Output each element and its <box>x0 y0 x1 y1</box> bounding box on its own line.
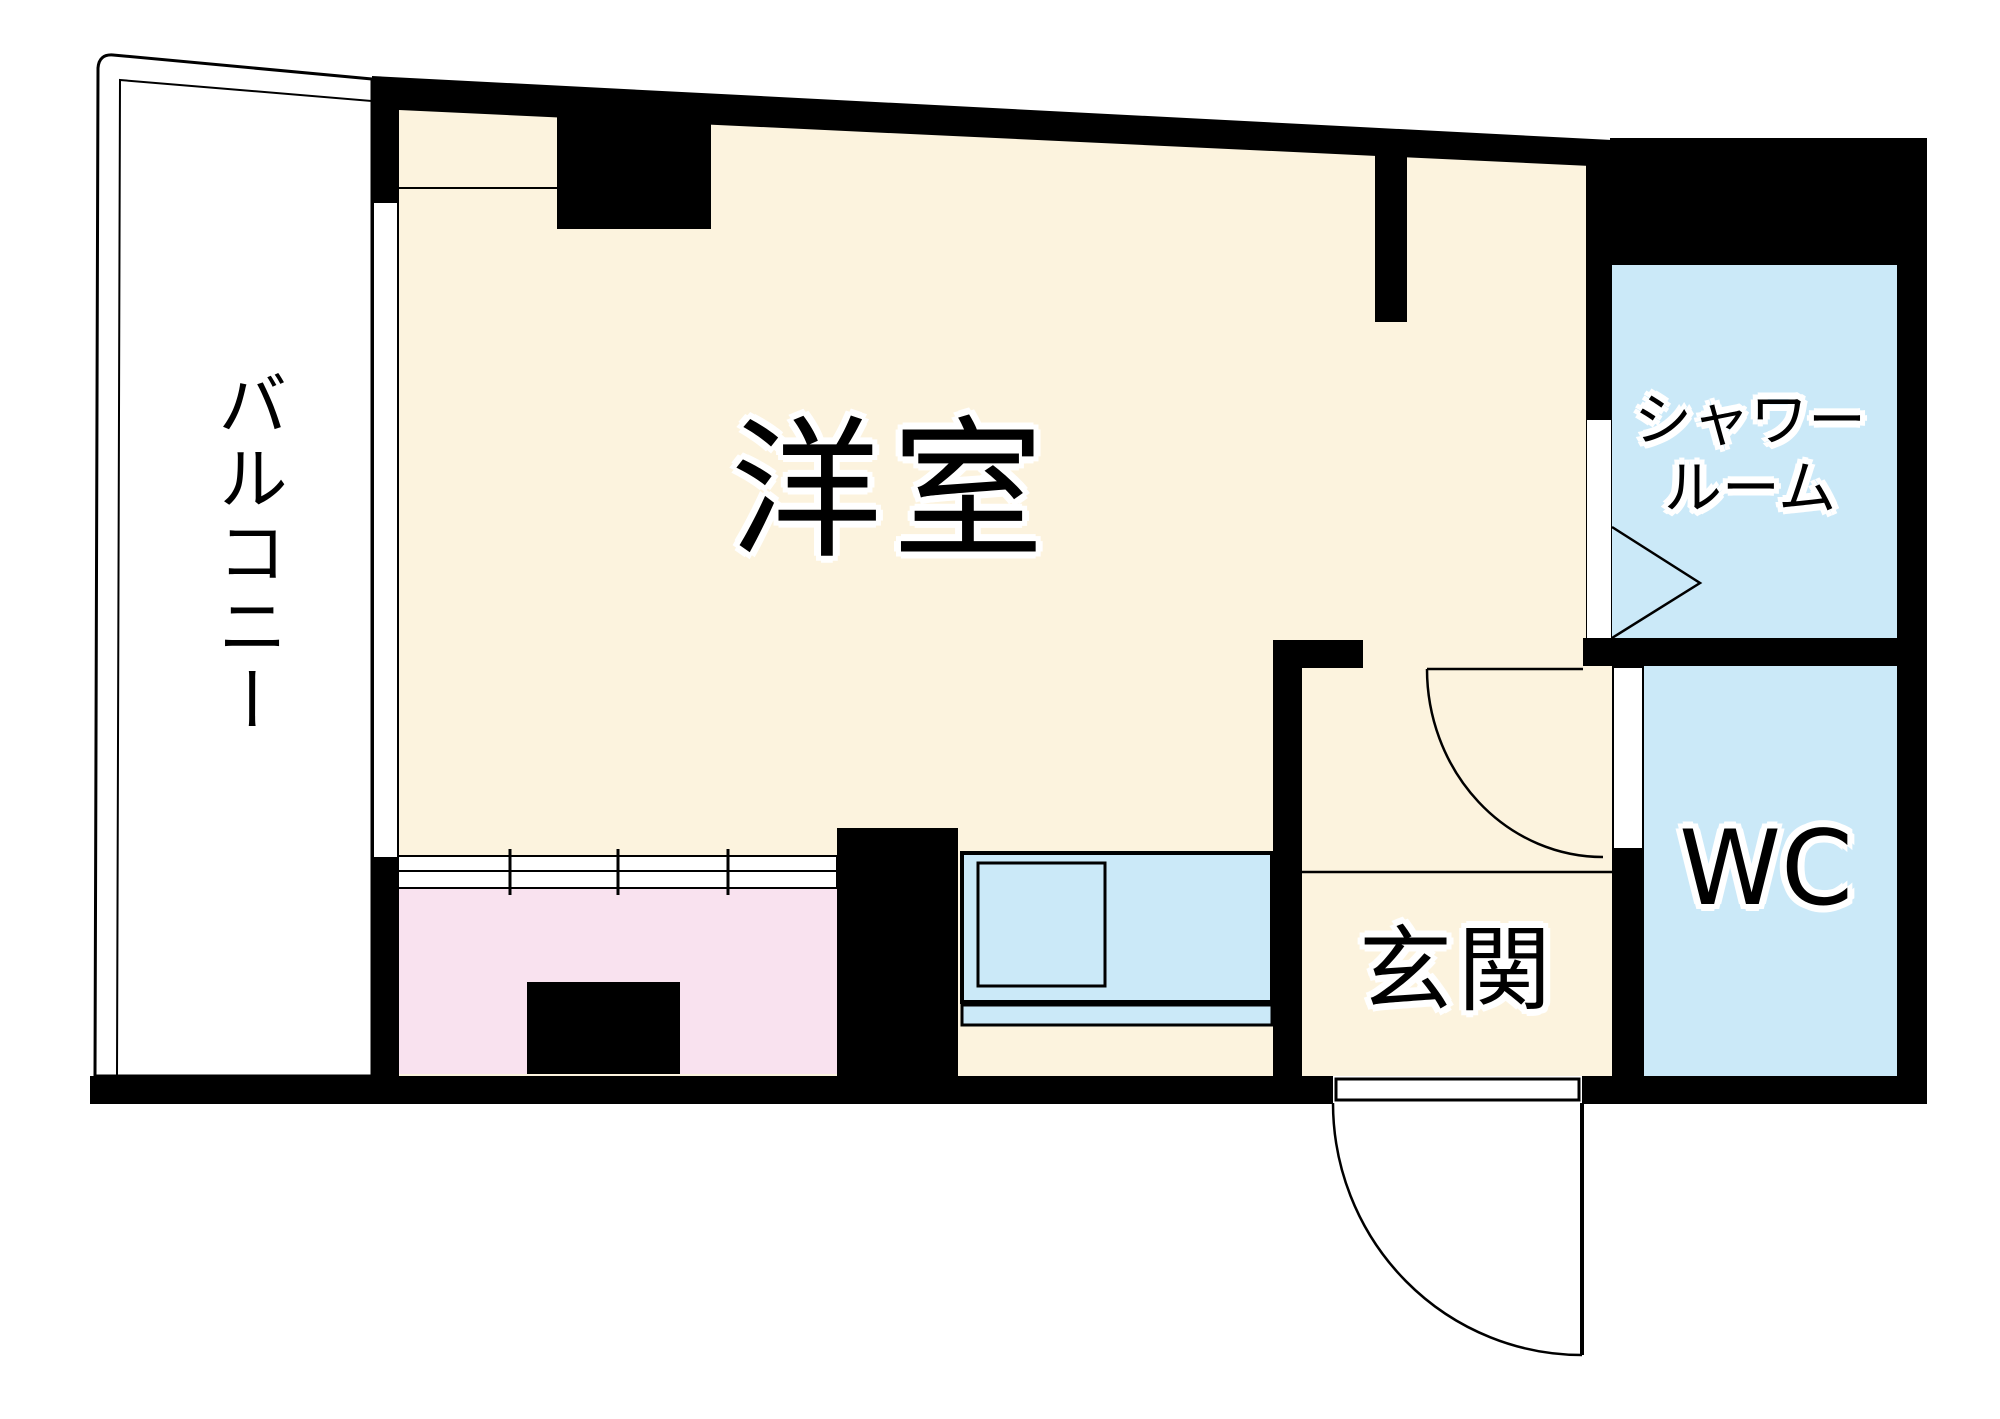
main-room-label: 洋室 <box>730 405 1054 580</box>
kitchen-counter <box>962 853 1272 1002</box>
shower-room-label: シャワー ルーム <box>1634 386 1866 522</box>
wall-shower-bottom <box>1583 638 1899 666</box>
front-door-leaf-closed <box>1336 1079 1579 1100</box>
kitchen-front-strip <box>962 1005 1272 1025</box>
shower-room-label-line1: シャワー <box>1634 386 1866 454</box>
balcony-window-gap <box>373 203 399 857</box>
wc-label: WC <box>1679 810 1853 928</box>
balcony-label: バルコニー <box>207 368 288 738</box>
pillar-top-box <box>557 112 711 229</box>
wall-stub-top <box>1375 154 1407 322</box>
wc-door-gap <box>1614 668 1642 848</box>
shower-room-label-line2: ルーム <box>1634 454 1866 522</box>
shower-door-gap <box>1587 420 1611 638</box>
wall-west-lower <box>372 857 399 1076</box>
wall-bottom <box>90 1076 1927 1104</box>
floorplan-canvas <box>0 0 2000 1419</box>
entrance-label: 玄関 <box>1359 918 1557 1025</box>
pillar-pink-room <box>527 982 680 1074</box>
wall-block-kitchen-left <box>837 828 958 1076</box>
